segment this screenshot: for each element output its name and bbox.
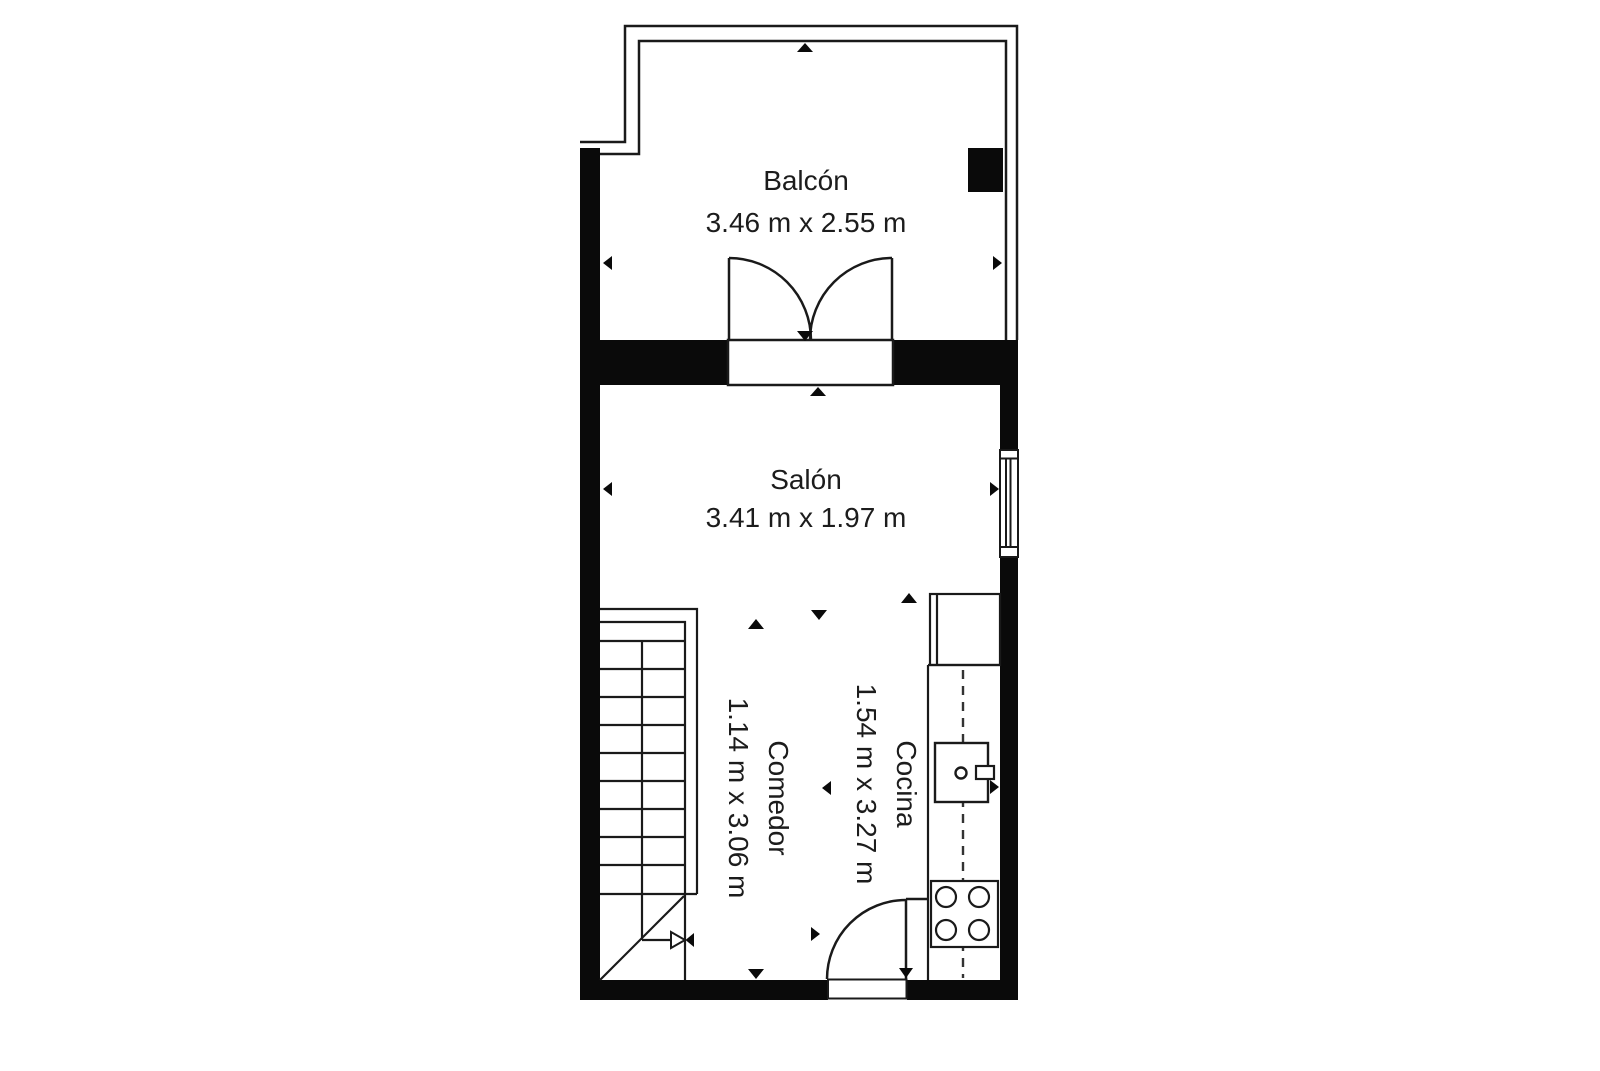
marker-balcony-left: [603, 256, 612, 270]
tick-markers: [603, 43, 1002, 979]
stair-treads: [600, 641, 697, 894]
floor-plan-drawing: [0, 0, 1600, 1071]
kitchen-cabinet: [930, 594, 1000, 665]
balcony-pillar: [968, 148, 1003, 192]
walls: [580, 148, 1018, 1000]
marker-balcony-top: [797, 43, 813, 52]
marker-kitchen-top: [901, 593, 917, 603]
window-frame: [1000, 450, 1018, 557]
french-door-frame: [728, 340, 893, 385]
marker-balcony-right: [993, 256, 1002, 270]
stove-burner-top-right: [969, 887, 989, 907]
marker-sink-wall-right: [990, 780, 999, 794]
sink-faucet: [976, 766, 994, 779]
marker-salon-left: [603, 482, 612, 496]
staircase: [600, 609, 697, 980]
stair-outer-outline: [600, 609, 697, 894]
railing-outer-line: [580, 26, 1017, 340]
marker-comedor-left: [822, 781, 831, 795]
french-door-left-swing-arc: [729, 258, 811, 340]
marker-mid-down: [811, 610, 827, 620]
stove-burner-top-left: [936, 887, 956, 907]
stair-direction-arrowhead: [671, 932, 685, 948]
marker-bottom-wall: [748, 969, 764, 979]
stove-burner-bottom-right: [969, 920, 989, 940]
marker-mid-up: [748, 619, 764, 629]
wall-left: [580, 148, 600, 1000]
wall-mid-band-right: [893, 340, 1018, 385]
wall-mid-band-left: [600, 340, 728, 385]
stove-burner-bottom-left: [936, 920, 956, 940]
sink-drain: [956, 768, 967, 779]
balcony-railing: [580, 26, 1017, 340]
floor-plan-canvas: Balcón 3.46 m x 2.55 m Salón 3.41 m x 1.…: [0, 0, 1600, 1071]
window: [1000, 450, 1018, 557]
entry-door-leaf: [906, 899, 928, 980]
french-door: [728, 258, 893, 385]
french-door-right-swing-arc: [810, 258, 892, 340]
entry-door-threshold: [828, 980, 907, 999]
marker-entry-door-right: [811, 927, 820, 941]
railing-inner-line: [600, 41, 1006, 340]
kitchen: [928, 594, 1000, 980]
marker-stair-arrow-left: [686, 933, 695, 947]
marker-entry-door-hinge: [899, 968, 913, 978]
wall-bottom-right: [907, 980, 1018, 1000]
marker-salon-door: [810, 387, 826, 396]
wall-right-lower: [1000, 557, 1018, 980]
wall-right-upper: [1000, 385, 1018, 450]
marker-salon-right: [990, 482, 999, 496]
entry-door-swing-arc: [827, 900, 906, 979]
wall-bottom-left: [580, 980, 828, 1000]
